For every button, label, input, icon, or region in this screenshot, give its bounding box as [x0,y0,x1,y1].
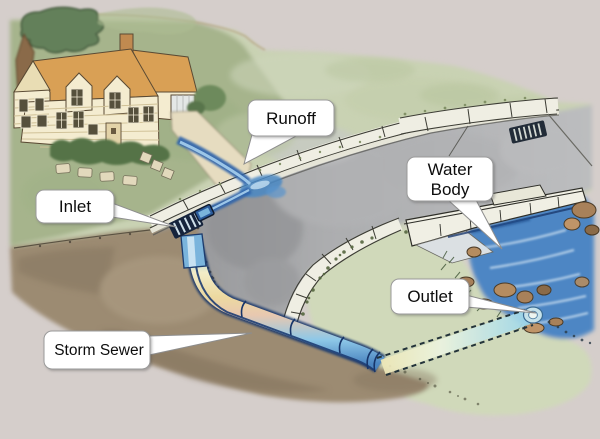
svg-text:Storm Sewer: Storm Sewer [54,342,144,359]
svg-text:Water: Water [428,160,473,179]
svg-text:Body: Body [431,180,470,199]
svg-text:Inlet: Inlet [59,197,91,216]
svg-text:Runoff: Runoff [266,109,316,128]
svg-text:Outlet: Outlet [407,287,453,306]
